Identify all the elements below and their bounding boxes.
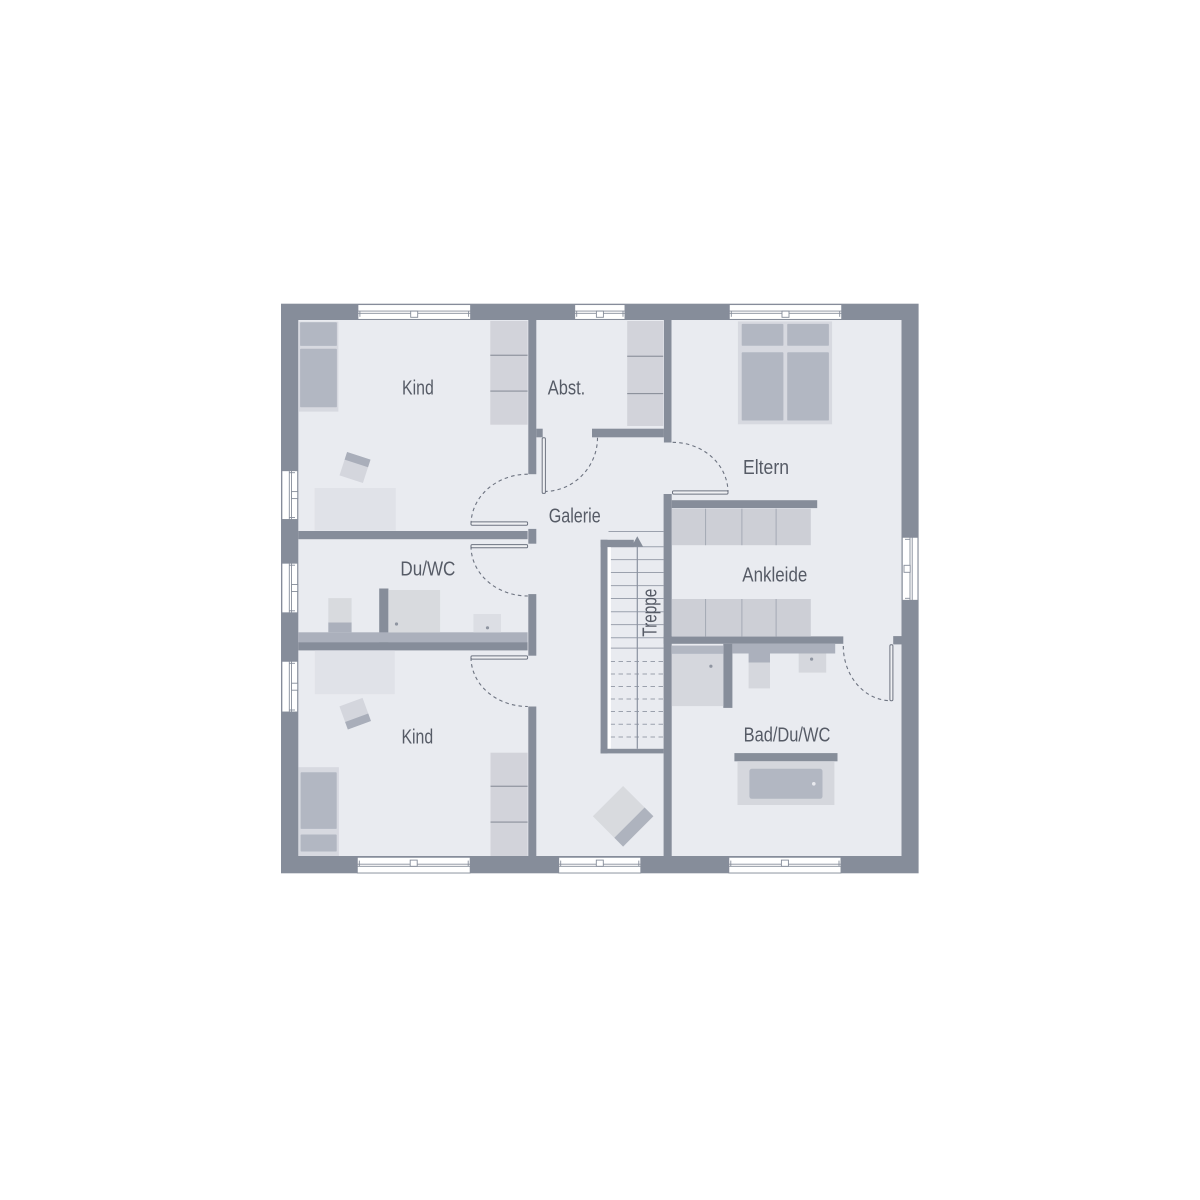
svg-text:Eltern: Eltern [743, 457, 789, 479]
svg-text:Ankleide: Ankleide [742, 565, 807, 587]
svg-text:Abst.: Abst. [548, 378, 586, 400]
svg-text:Galerie: Galerie [549, 505, 601, 527]
svg-text:Du/WC: Du/WC [400, 559, 455, 581]
svg-text:Treppe: Treppe [639, 589, 661, 637]
svg-text:Kind: Kind [402, 377, 434, 399]
svg-text:Kind: Kind [401, 726, 433, 748]
svg-text:Bad/Du/WC: Bad/Du/WC [744, 725, 831, 747]
